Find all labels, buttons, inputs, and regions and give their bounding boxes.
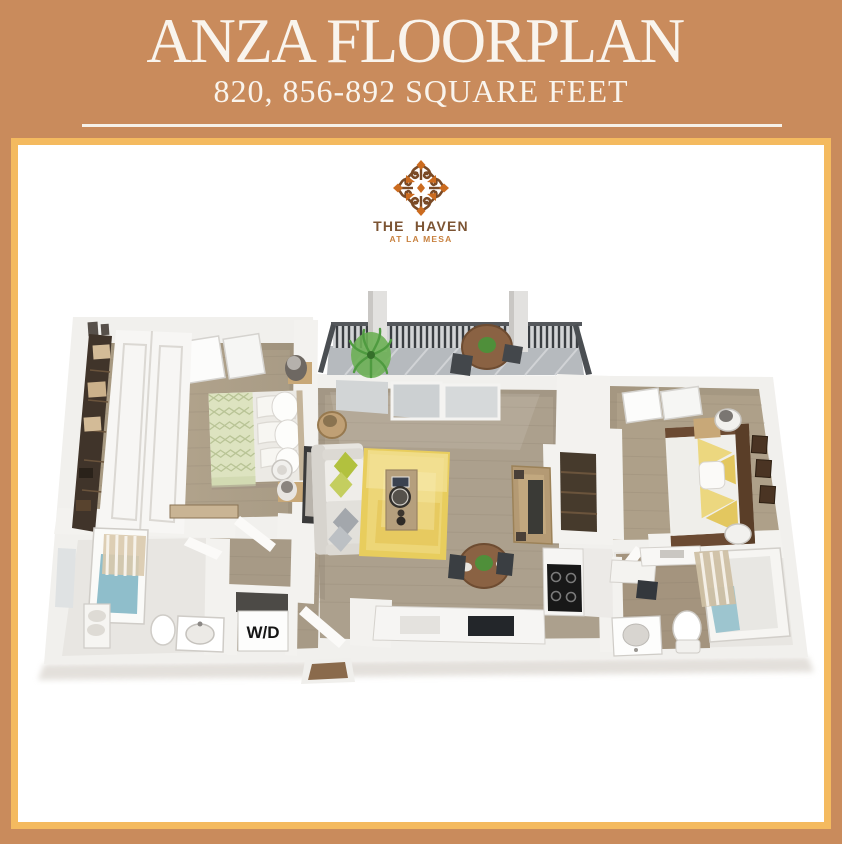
- svg-text:W/D: W/D: [246, 623, 279, 642]
